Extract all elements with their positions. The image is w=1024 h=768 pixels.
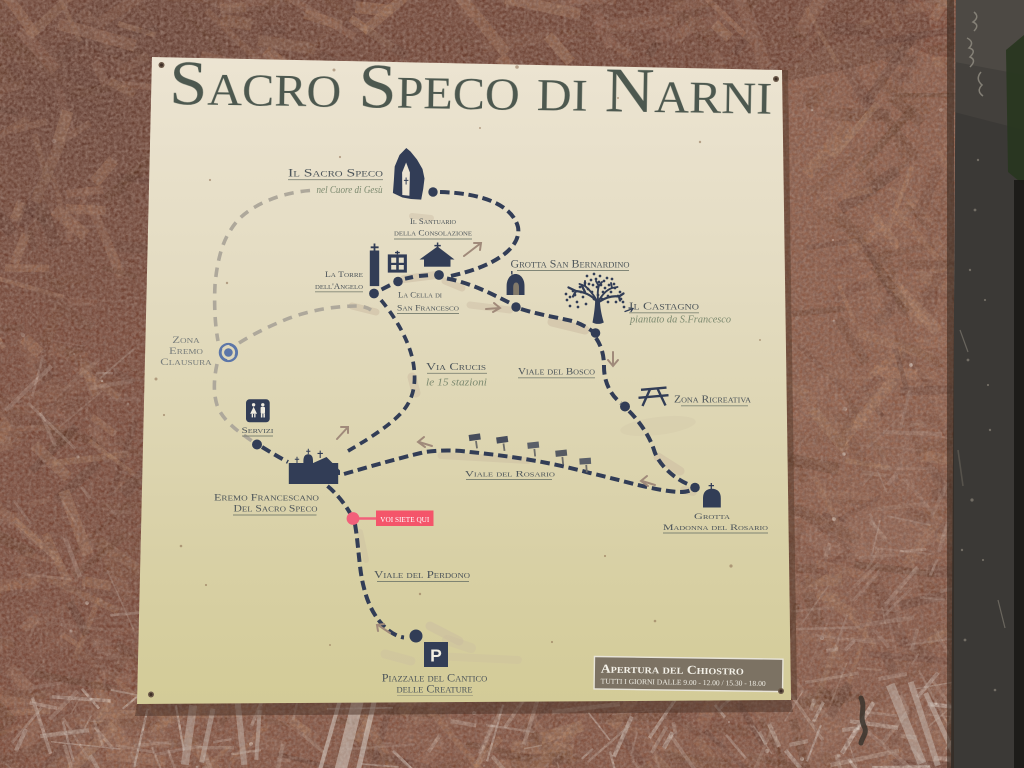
svg-text:Grotta San Bernardino: Grotta San Bernardino [511, 259, 630, 271]
svg-text:San Francesco: San Francesco [397, 304, 460, 313]
svg-text:Clausura: Clausura [160, 357, 212, 368]
svg-text:Zona Ricreativa: Zona Ricreativa [674, 395, 751, 406]
svg-text:Il Castagno: Il Castagno [629, 301, 699, 313]
svg-text:le 15 stazioni: le 15 stazioni [426, 378, 487, 389]
svg-text:nel Cuore di Gesù: nel Cuore di Gesù [317, 184, 383, 196]
svg-text:Del Sacro Speco: Del Sacro Speco [234, 505, 318, 515]
svg-text:Zona: Zona [172, 335, 200, 346]
svg-text:Il Sacro Speco: Il Sacro Speco [288, 167, 383, 180]
svg-text:Viale del Rosario: Viale del Rosario [465, 469, 556, 479]
svg-text:Sacro Speco di Narni: Sacro Speco di Narni [169, 47, 773, 128]
svg-text:Viale del Bosco: Viale del Bosco [518, 368, 595, 378]
svg-text:Servizi: Servizi [242, 426, 274, 435]
svg-text:della Consolazione: della Consolazione [394, 229, 472, 238]
svg-text:Il Santuario: Il Santuario [410, 217, 457, 226]
svg-text:Via Crucis: Via Crucis [426, 362, 486, 373]
svg-text:Eremo: Eremo [169, 346, 203, 357]
svg-text:piantato da S.Francesco: piantato da S.Francesco [629, 315, 731, 326]
svg-text:Grotta: Grotta [694, 511, 731, 521]
svg-text:VOI SIETE QUI: VOI SIETE QUI [380, 515, 429, 524]
svg-text:Viale del Perdono: Viale del Perdono [374, 570, 470, 581]
svg-text:Eremo Francescano: Eremo Francescano [214, 494, 319, 504]
svg-text:dell'Angelo: dell'Angelo [315, 282, 364, 291]
svg-text:La Cella di: La Cella di [398, 291, 442, 300]
svg-text:P: P [430, 646, 442, 666]
svg-text:La Torre: La Torre [325, 270, 363, 279]
svg-text:Apertura del Chiostro: Apertura del Chiostro [601, 662, 744, 678]
svg-text:Madonna del Rosario: Madonna del Rosario [663, 522, 769, 532]
svg-text:delle Creature: delle Creature [397, 684, 473, 696]
